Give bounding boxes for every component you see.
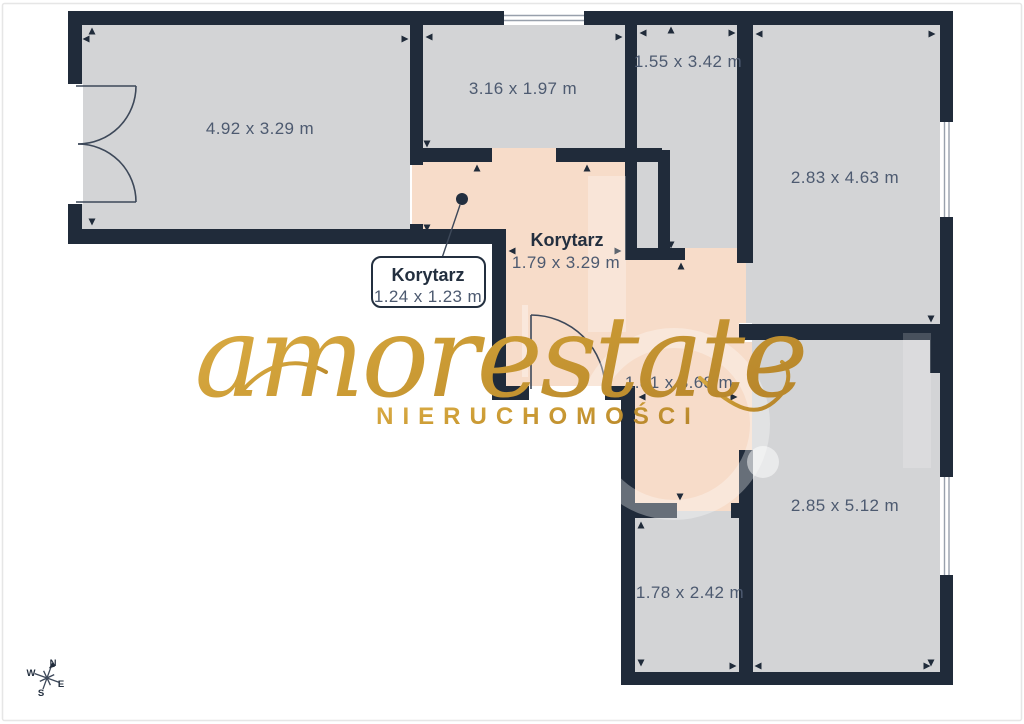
room-label-4: 2.83 x 4.63 m — [791, 168, 899, 187]
room-label-5: 2.85 x 5.12 m — [791, 496, 899, 515]
room-label-2: 3.16 x 1.97 m — [469, 79, 577, 98]
corridor-dims-label: 1.79 x 3.29 m — [512, 253, 620, 272]
corridor-doorway — [685, 253, 733, 260]
compass-n: N — [50, 658, 57, 669]
floorplan-canvas: 4.92 x 3.29 m 3.16 x 1.97 m 1.55 x 3.42 … — [0, 0, 1024, 724]
window-icon — [940, 477, 953, 575]
callout-anchor-dot — [456, 193, 468, 205]
window-icon — [940, 122, 953, 217]
corridor-name-label: Korytarz — [530, 230, 603, 250]
callout-title: Korytarz — [391, 265, 464, 285]
compass-s: S — [38, 688, 44, 699]
window-icon — [504, 11, 584, 25]
compass-e: E — [58, 679, 64, 690]
compass-rose: N W E S — [27, 658, 65, 699]
watermark-subtitle-text: NIERUCHOMOŚCI — [376, 402, 700, 430]
compass-w: W — [27, 668, 36, 679]
room-label-6: 1.78 x 2.42 m — [636, 583, 744, 602]
room-label-3: 1.55 x 3.42 m — [634, 52, 742, 71]
corridor-doorway — [492, 148, 556, 162]
brand-watermark: amorestate NIERUCHOMOŚCI — [195, 293, 806, 430]
room-label-1: 4.92 x 3.29 m — [206, 119, 314, 138]
